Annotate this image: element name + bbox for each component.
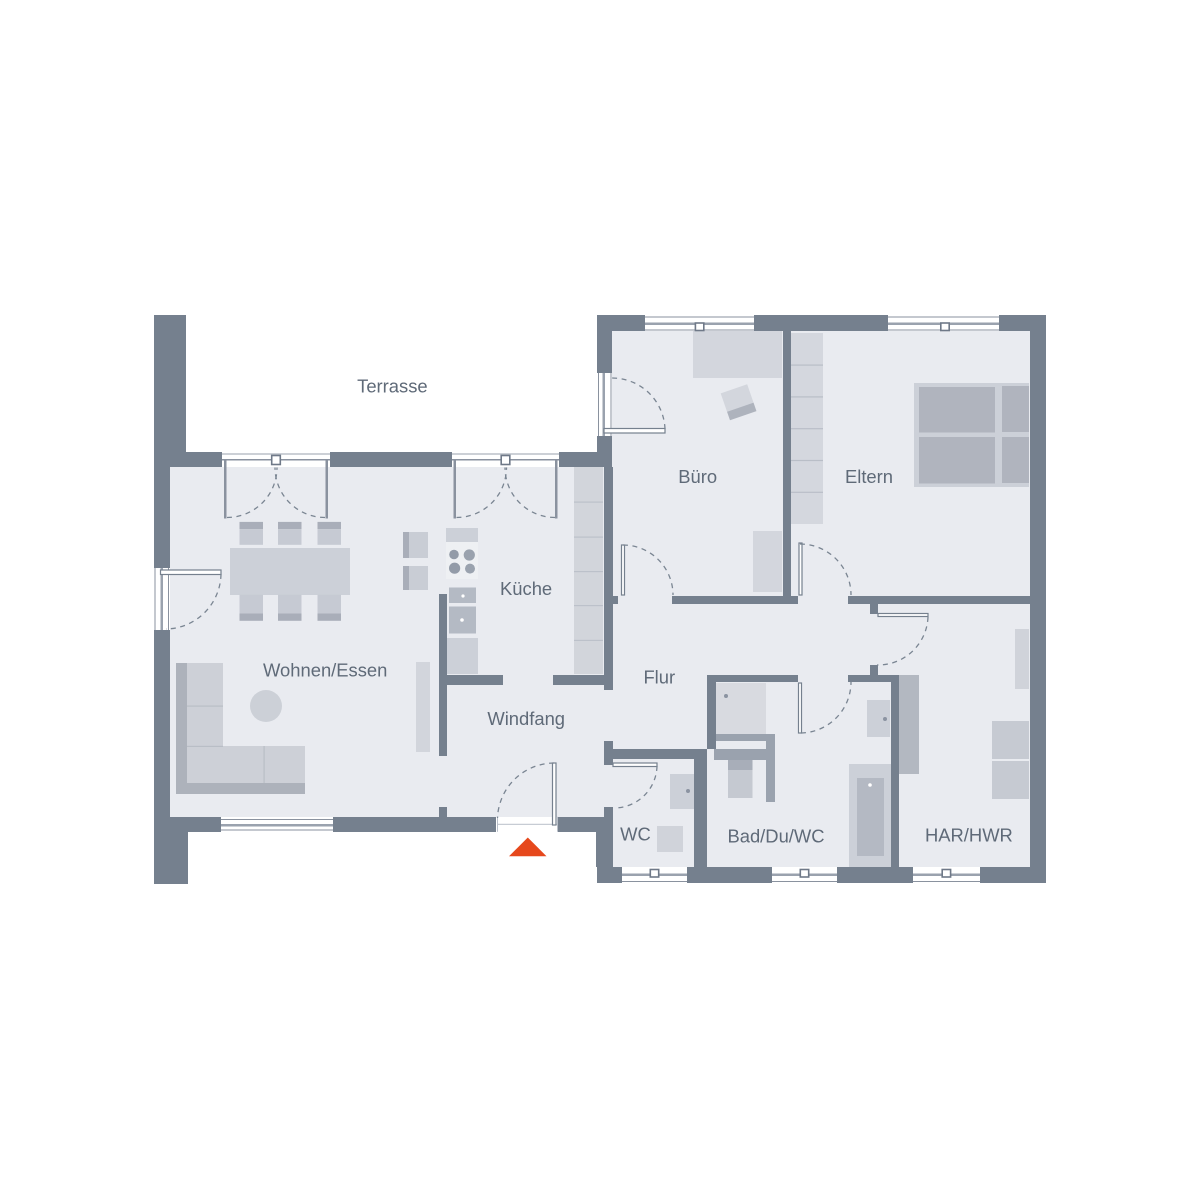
svg-text:Küche: Küche — [500, 578, 552, 599]
svg-text:Windfang: Windfang — [487, 708, 565, 729]
svg-text:WC: WC — [620, 824, 651, 845]
svg-text:Büro: Büro — [678, 466, 717, 487]
svg-text:Eltern: Eltern — [845, 466, 893, 487]
svg-text:Flur: Flur — [643, 667, 675, 688]
svg-text:HAR/HWR: HAR/HWR — [925, 825, 1013, 846]
svg-text:Terrasse: Terrasse — [357, 376, 428, 397]
svg-text:Bad/Du/WC: Bad/Du/WC — [727, 826, 824, 847]
svg-text:Wohnen/Essen: Wohnen/Essen — [263, 660, 387, 681]
